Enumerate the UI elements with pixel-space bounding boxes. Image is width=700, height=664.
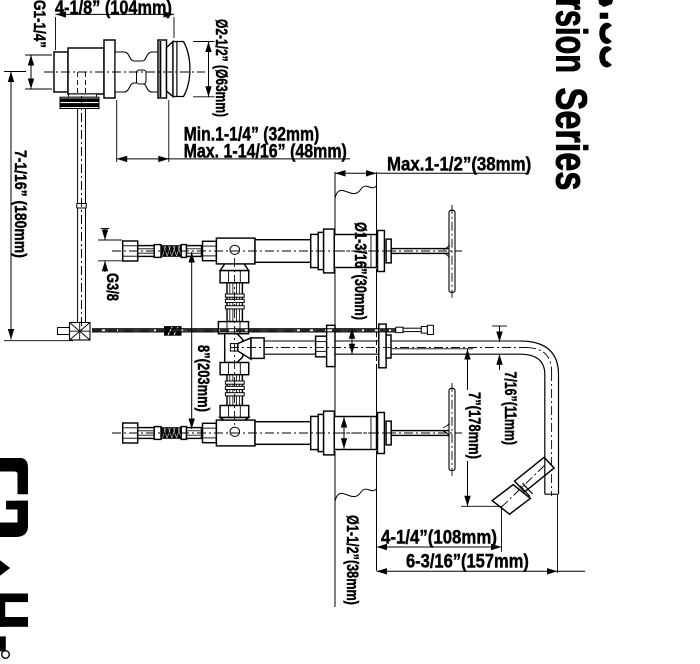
svg-text:7/16”(11mm): 7/16”(11mm) bbox=[500, 372, 518, 446]
svg-text:8”(203mm): 8”(203mm) bbox=[194, 345, 213, 412]
svg-text:4-1/4”(108mm): 4-1/4”(108mm) bbox=[381, 526, 497, 547]
svg-text:7-1/16” (180mm): 7-1/16” (180mm) bbox=[11, 150, 30, 258]
svg-text:G1-1/4”: G1-1/4” bbox=[30, 0, 49, 48]
svg-text:Ø1-3/16”(30mm): Ø1-3/16”(30mm) bbox=[350, 222, 369, 320]
svg-text:4-1/8” (104mm): 4-1/8” (104mm) bbox=[55, 0, 172, 18]
svg-text:Max. 1-14/16” (48mm): Max. 1-14/16” (48mm) bbox=[184, 140, 347, 162]
svg-text:G3/8: G3/8 bbox=[102, 273, 121, 301]
svg-text:Ø1-1/2”(38mm): Ø1-1/2”(38mm) bbox=[342, 515, 361, 605]
svg-text:7”(178mm): 7”(178mm) bbox=[465, 392, 484, 459]
svg-text:6-3/16”(157mm): 6-3/16”(157mm) bbox=[406, 550, 529, 572]
svg-text:Max.1-1/2”(38mm): Max.1-1/2”(38mm) bbox=[387, 152, 531, 174]
svg-text:rsion: rsion bbox=[547, 0, 596, 73]
svg-text:Ø2-1/2” (Ø63mm): Ø2-1/2” (Ø63mm) bbox=[211, 19, 229, 117]
svg-text:Series: Series bbox=[547, 88, 595, 191]
